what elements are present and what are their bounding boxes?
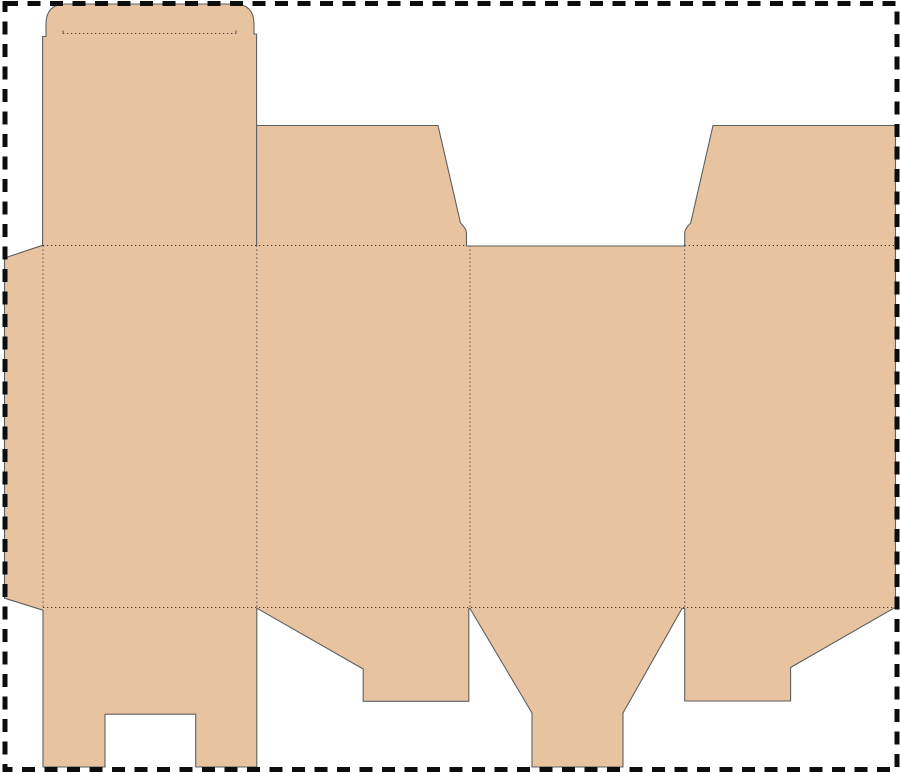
dieline-page: [0, 0, 900, 773]
box-dieline-canvas: [0, 0, 900, 773]
dieline-outline: [5, 4, 896, 767]
